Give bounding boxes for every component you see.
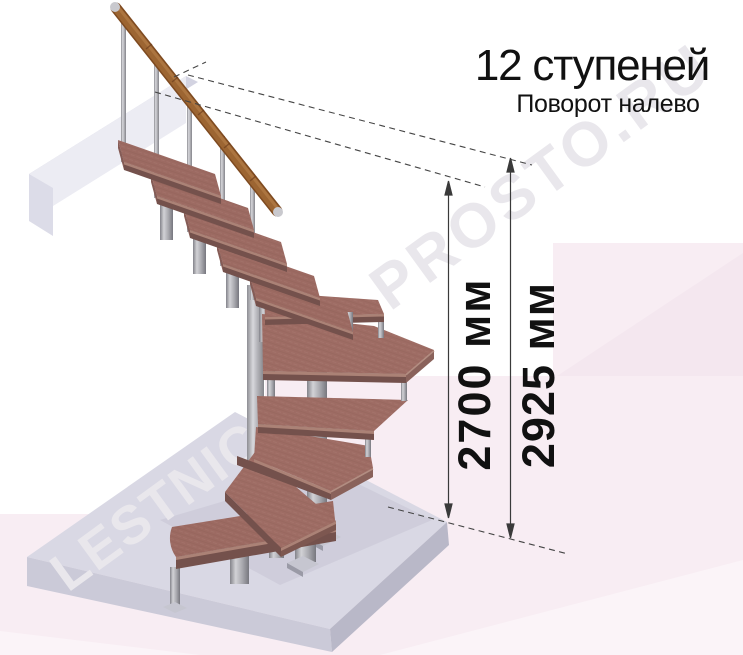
svg-text:2700 мм: 2700 мм (449, 277, 500, 470)
svg-text:12 ступеней: 12 ступеней (475, 41, 709, 90)
svg-text:2925 мм: 2925 мм (513, 282, 564, 468)
svg-text:Поворот налево: Поворот налево (516, 90, 699, 118)
